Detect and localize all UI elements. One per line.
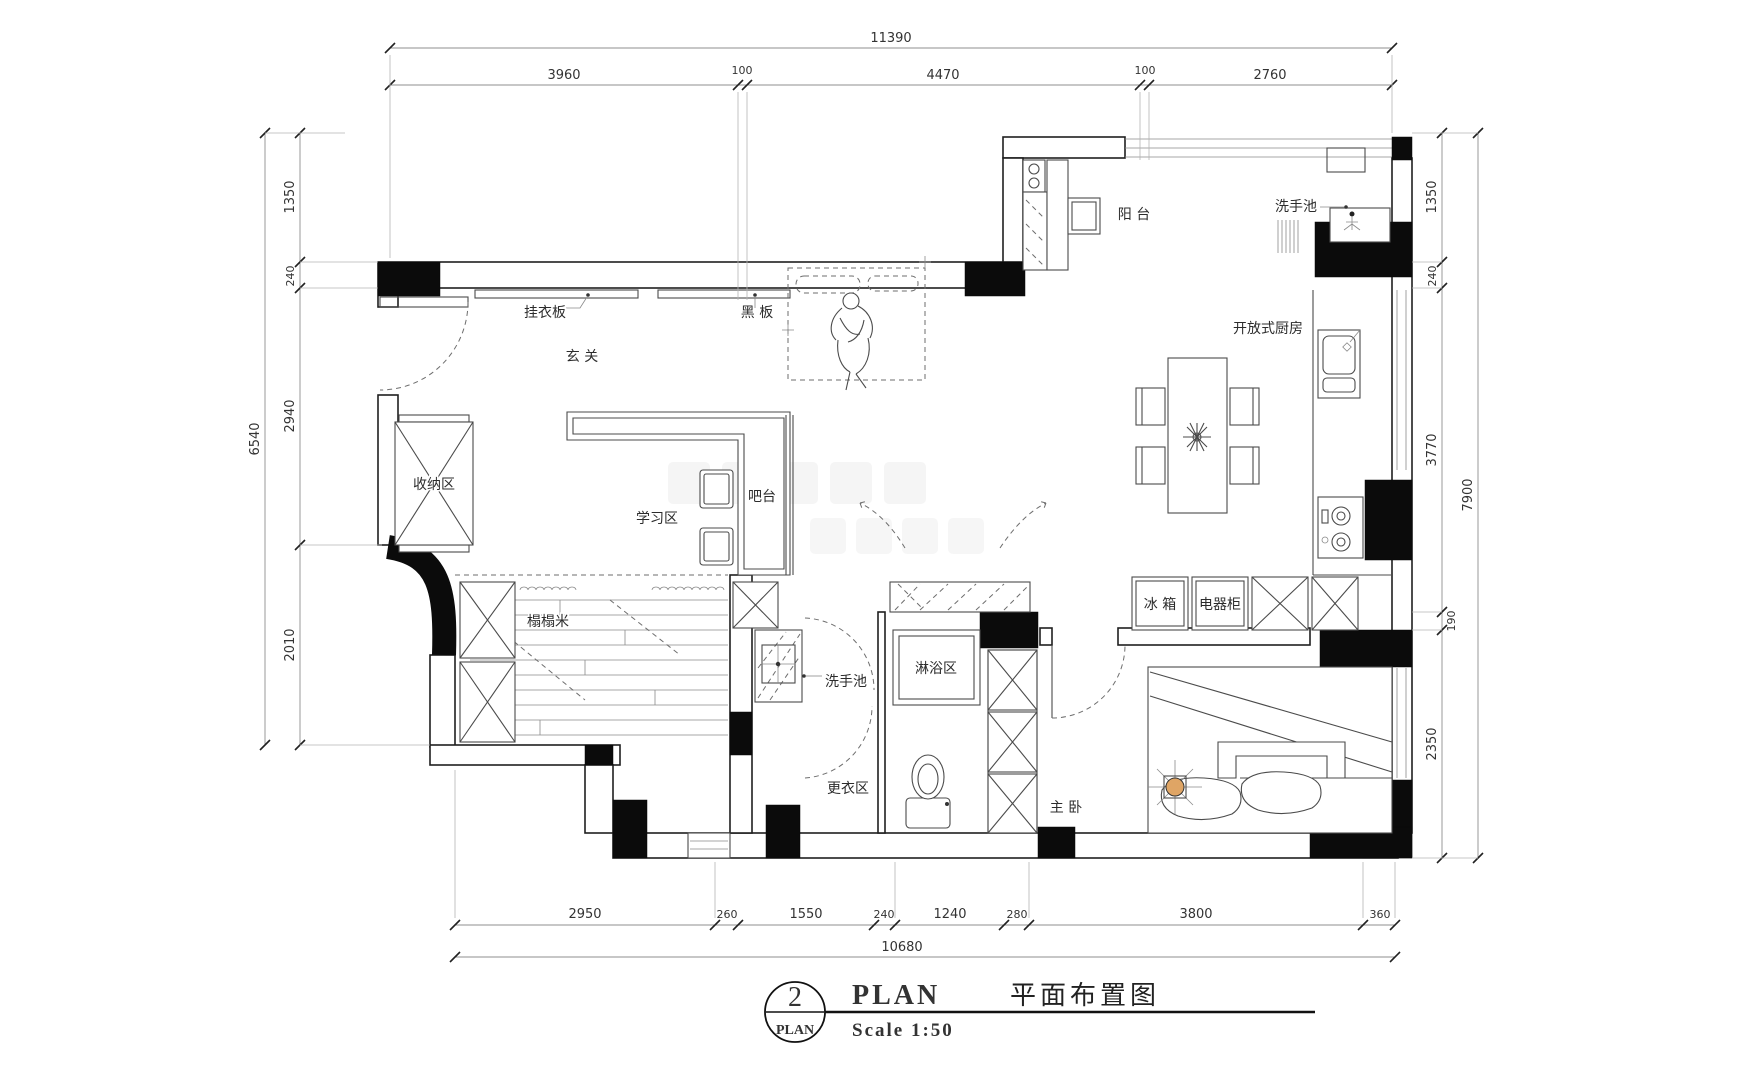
dim-bot-3: 1550: [789, 907, 822, 922]
storage-cabinet: 收纳区: [395, 415, 473, 552]
entry-door-swing: [380, 302, 468, 390]
corridor-cabinet: [890, 582, 1030, 612]
dim-right-4: 190: [1445, 611, 1458, 632]
coat-rack-board: [475, 290, 638, 298]
dim-bot-total: 10680: [881, 940, 922, 955]
dim-right-2: 240: [1426, 266, 1439, 287]
appliance-row: 冰 箱 电器柜: [1132, 577, 1358, 630]
drying-rack: [1278, 220, 1298, 253]
dim-right-1: 1350: [1425, 180, 1440, 213]
plant-centerpiece: [1183, 423, 1211, 451]
dim-top-total: 11390: [870, 31, 911, 46]
label-tatami: 榻榻米: [527, 614, 569, 630]
dim-left-1: 1350: [283, 180, 298, 213]
label-balcony-sink: 洗手池: [1275, 199, 1317, 215]
master-bedroom: 主 卧: [988, 645, 1392, 833]
label-appliance-cabinet: 电器柜: [1199, 597, 1241, 613]
kitchen-sink: [1318, 330, 1360, 398]
dim-top-1: 3960: [547, 68, 580, 83]
dressing-door-swing: [805, 706, 872, 778]
label-study: 学习区: [636, 511, 678, 527]
blackboard-board: [658, 290, 790, 298]
dimensions-top: 11390 3960 100 4470 100 2760: [385, 31, 1397, 300]
label-shower: 淋浴区: [915, 661, 957, 677]
swing-arrow: [1000, 501, 1046, 548]
dim-top-4: 100: [1135, 64, 1156, 77]
dim-bot-8: 360: [1370, 908, 1391, 921]
stove: [1318, 497, 1363, 558]
dim-left-4: 2010: [283, 628, 298, 661]
label-entry: 玄 关: [566, 348, 598, 365]
desk-chair: [700, 470, 733, 508]
title-scale: Scale 1:50: [852, 1020, 954, 1041]
title-name-en: PLAN: [852, 980, 940, 1011]
title-name-zh: 平面布置图: [1010, 981, 1160, 1011]
label-master-bedroom: 主 卧: [1050, 800, 1082, 816]
dim-top-2: 100: [732, 64, 753, 77]
wardrobe: [988, 650, 1037, 833]
dim-left-3: 2940: [283, 399, 298, 432]
bedroom-door-swing: [1052, 645, 1125, 718]
balcony-sink: [1330, 208, 1390, 242]
dim-right-5: 2350: [1425, 727, 1440, 760]
dim-top-3: 4470: [926, 68, 959, 83]
dim-left-2: 240: [284, 266, 297, 287]
dimensions-right: 7900 1350 240 3770 190 2350: [1412, 128, 1483, 863]
balcony-unit: [1327, 148, 1365, 172]
human-figure: [831, 293, 872, 390]
dim-top-5: 2760: [1253, 68, 1286, 83]
label-bar: 吧台: [748, 489, 776, 505]
dim-bot-5: 1240: [933, 907, 966, 922]
dining-table: [1136, 358, 1259, 513]
dim-bot-6: 280: [1007, 908, 1028, 921]
dim-bot-7: 3800: [1179, 907, 1212, 922]
balcony-cabinet: [1023, 192, 1047, 270]
label-open-kitchen: 开放式厨房: [1233, 321, 1303, 337]
dim-right-total: 7900: [1461, 478, 1476, 511]
toilet: [906, 755, 950, 828]
label-bath-sink: 洗手池: [825, 674, 867, 690]
entry-area: 挂衣板 黑 板 玄 关: [380, 290, 790, 390]
title-index: 2: [788, 982, 802, 1013]
open-kitchen: 开放式厨房: [1136, 290, 1392, 575]
pillow: [1241, 772, 1321, 814]
title-index-label: PLAN: [776, 1023, 814, 1038]
dim-bot-2: 260: [717, 908, 738, 921]
label-fridge: 冰 箱: [1144, 597, 1176, 613]
label-balcony: 阳 台: [1118, 207, 1150, 223]
dim-right-3: 3770: [1425, 433, 1440, 466]
dim-bot-1: 2950: [568, 907, 601, 922]
water-heater: [1023, 160, 1045, 192]
dim-bot-4: 240: [874, 908, 895, 921]
dim-left-total: 6540: [248, 422, 263, 455]
label-coat-rack: 挂衣板: [524, 305, 566, 321]
title-block: 2 PLAN PLAN 平面布置图 Scale 1:50: [765, 980, 1315, 1042]
label-blackboard: 黑 板: [741, 305, 773, 321]
desk-chair: [700, 528, 733, 565]
label-dressing: 更衣区: [827, 781, 869, 797]
washing-machine: [1068, 198, 1100, 234]
floor-plan-page: 挂衣板 黑 板 玄 关 收纳区 学习区 吧台: [0, 0, 1756, 1080]
bed: [1148, 667, 1392, 833]
label-storage: 收纳区: [413, 477, 455, 493]
floor-plan-drawing: 挂衣板 黑 板 玄 关 收纳区 学习区 吧台: [0, 0, 1756, 1080]
curved-wall: [388, 547, 444, 655]
